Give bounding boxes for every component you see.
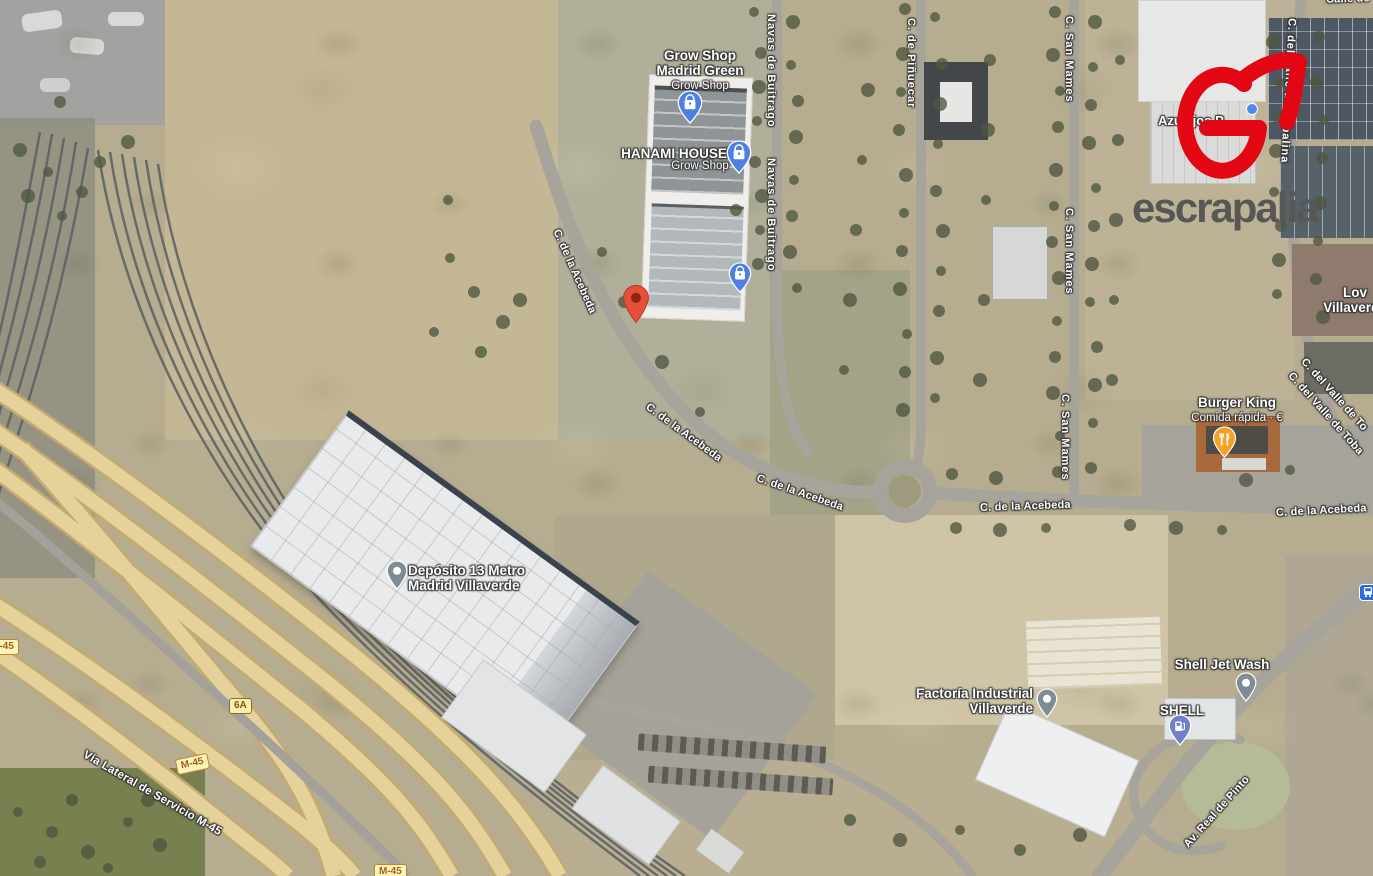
poi-title-burger-king[interactable]: Burger King bbox=[1167, 395, 1307, 410]
poi-title-villaverde-partial[interactable]: Lov Villaverde bbox=[1300, 285, 1373, 315]
poi-title-shell-jet-wash[interactable]: Shell Jet Wash bbox=[1167, 657, 1277, 672]
road-badge-exit-6a: 6A bbox=[229, 698, 252, 714]
dark-utility-building bbox=[924, 62, 988, 140]
burger-king-restaurant-pin-icon[interactable] bbox=[1212, 426, 1237, 458]
bus-stop-icon[interactable] bbox=[1359, 584, 1373, 601]
satellite-map[interactable]: Navas de Buitrago Navas de Buitrago C. d… bbox=[0, 0, 1373, 876]
street-label-san-mames-3: C. San Mames bbox=[1059, 394, 1071, 481]
poi-title-deposito-metro[interactable]: Depósito 13 Metro Madrid Villaverde bbox=[408, 563, 525, 593]
shell-gas-station-pin-icon[interactable] bbox=[1168, 714, 1192, 746]
poi-title-grow-shop-madrid-green[interactable]: Grow Shop Madrid Green bbox=[620, 48, 780, 78]
factoria-place-pin-icon[interactable] bbox=[1036, 688, 1058, 718]
grow-shop-pin-3 shopping-bag-pin-icon[interactable] bbox=[728, 262, 752, 293]
street-label-san-mames-1: C. San Mames bbox=[1063, 16, 1075, 103]
road-badge-m45-left: M-45 bbox=[0, 639, 19, 655]
white-building-midright bbox=[992, 226, 1048, 300]
poi-title-factoria-industrial[interactable]: Factoría Industrial Villaverde bbox=[913, 686, 1033, 716]
deposito-place-pin-icon[interactable] bbox=[386, 560, 408, 590]
grow-shop-pin-2 shopping-bag-pin-icon[interactable] bbox=[726, 140, 752, 174]
grow-shop-pin-1 shopping-bag-pin-icon[interactable] bbox=[677, 90, 703, 124]
road-badge-m45-bottom: M-45 bbox=[374, 864, 407, 876]
property-red-marker-icon[interactable] bbox=[622, 284, 650, 324]
bk-canopy bbox=[1222, 458, 1266, 470]
street-label-navas-2: Navas de Buitrago bbox=[765, 158, 777, 272]
street-label-pinuecar: C. de Piñuecar bbox=[905, 18, 917, 108]
factory-building-a bbox=[1025, 616, 1163, 691]
escrapalia-logo-text: escrapalia bbox=[1132, 184, 1318, 232]
roundabout bbox=[880, 466, 930, 516]
grow-shop-building-south bbox=[648, 203, 744, 310]
street-label-san-mames-2: C. San Mames bbox=[1063, 208, 1075, 295]
utility-building-roof bbox=[940, 82, 972, 122]
shell-jet-wash-place-pin-icon[interactable] bbox=[1235, 672, 1257, 702]
poi-subtitle-burger-king: Comida rápida · € bbox=[1167, 412, 1307, 424]
burger-king-building bbox=[1196, 416, 1280, 472]
